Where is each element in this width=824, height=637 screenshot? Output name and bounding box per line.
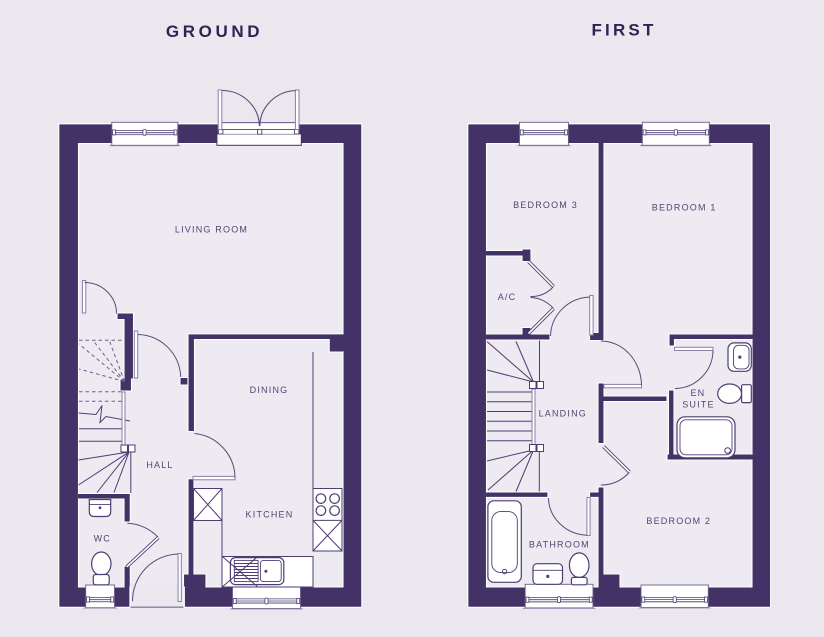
svg-text:HALL: HALL [146,460,173,470]
svg-text:BEDROOM 3: BEDROOM 3 [513,200,578,210]
svg-text:GROUND: GROUND [166,22,263,41]
svg-text:A/C: A/C [498,292,517,302]
svg-text:EN: EN [690,388,705,398]
svg-text:BEDROOM 2: BEDROOM 2 [646,516,711,526]
svg-text:FIRST: FIRST [591,21,656,40]
svg-text:KITCHEN: KITCHEN [246,510,294,520]
svg-text:BATHROOM: BATHROOM [529,540,590,550]
svg-text:LIVING ROOM: LIVING ROOM [175,225,248,235]
svg-text:LANDING: LANDING [539,409,587,419]
svg-text:SUITE: SUITE [682,399,715,409]
svg-text:BEDROOM 1: BEDROOM 1 [652,203,717,213]
svg-text:DINING: DINING [250,385,289,395]
svg-text:WC: WC [94,534,111,544]
